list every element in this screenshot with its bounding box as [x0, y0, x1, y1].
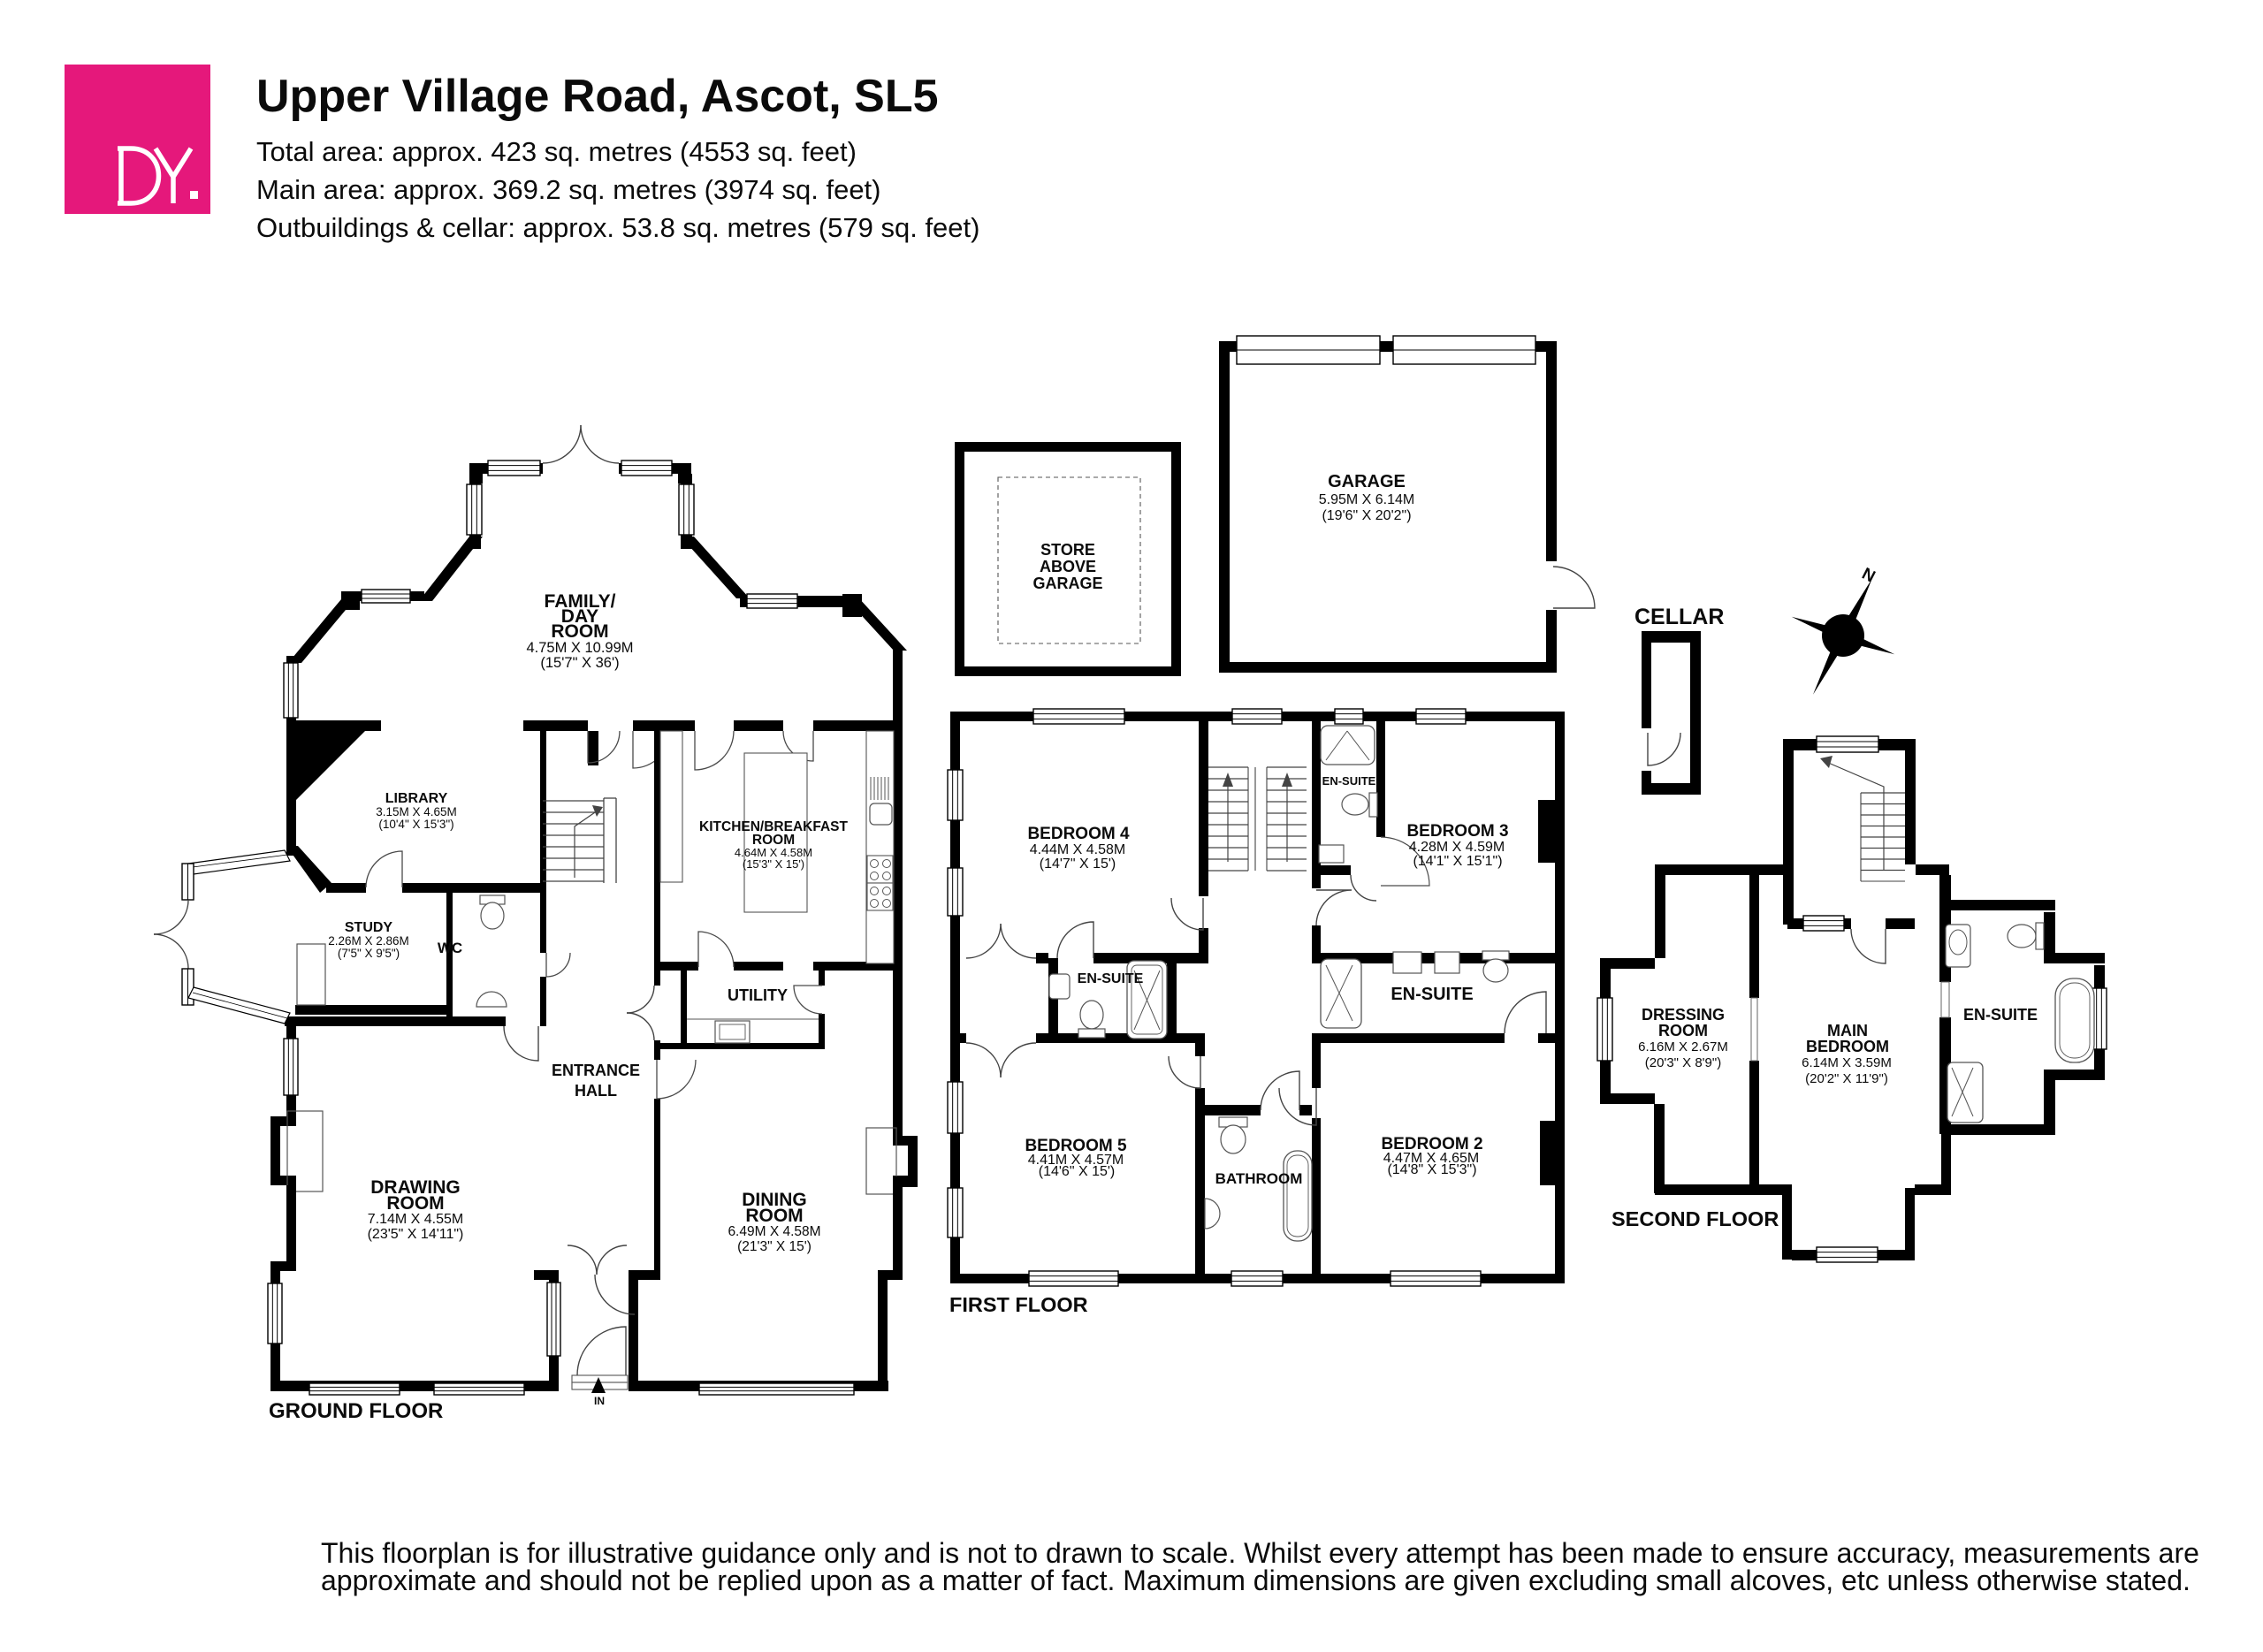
svg-text:BEDROOM: BEDROOM [1806, 1038, 1889, 1055]
svg-text:5.95M X 6.14M: 5.95M X 6.14M [1319, 492, 1415, 507]
svg-text:ENTRANCE: ENTRANCE [552, 1062, 640, 1079]
svg-text:(15'3" X 15'): (15'3" X 15') [743, 857, 804, 871]
svg-text:ABOVE: ABOVE [1040, 558, 1096, 575]
svg-text:6.16M X 2.67M: 6.16M X 2.67M [1638, 1039, 1728, 1054]
svg-text:BATHROOM: BATHROOM [1215, 1170, 1303, 1187]
svg-text:IN: IN [594, 1395, 605, 1407]
svg-text:DRESSING: DRESSING [1642, 1006, 1725, 1024]
svg-text:GARAGE: GARAGE [1032, 575, 1102, 592]
svg-text:N: N [1859, 565, 1878, 587]
svg-text:ROOM: ROOM [386, 1193, 444, 1214]
svg-text:LIBRARY: LIBRARY [385, 791, 448, 806]
svg-text:ROOM: ROOM [1658, 1022, 1708, 1039]
svg-text:3.15M X 4.65M: 3.15M X 4.65M [376, 805, 457, 818]
svg-text:WC: WC [438, 940, 462, 956]
svg-text:(23'5" X 14'11"): (23'5" X 14'11") [368, 1227, 464, 1242]
svg-text:4.44M X 4.58M: 4.44M X 4.58M [1030, 842, 1126, 857]
svg-text:STUDY: STUDY [345, 920, 393, 935]
svg-text:Outbuildings & cellar: approx.: Outbuildings & cellar: approx. 53.8 sq. … [256, 212, 979, 243]
svg-text:(10'4" X 15'3"): (10'4" X 15'3") [378, 818, 453, 831]
svg-text:4.28M X 4.59M: 4.28M X 4.59M [1409, 840, 1505, 855]
svg-text:MAIN: MAIN [1827, 1022, 1868, 1039]
svg-text:(20'2" X 11'9"): (20'2" X 11'9") [1805, 1071, 1888, 1086]
svg-text:STORE: STORE [1040, 541, 1095, 559]
svg-text:(20'3" X 8'9"): (20'3" X 8'9") [1645, 1055, 1721, 1070]
svg-text:Upper Village Road, Ascot, SL5: Upper Village Road, Ascot, SL5 [256, 71, 939, 122]
svg-text:6.14M X 3.59M: 6.14M X 3.59M [1802, 1055, 1892, 1070]
svg-text:Total area: approx. 423 sq. me: Total area: approx. 423 sq. metres (4553… [256, 136, 857, 167]
svg-text:UTILITY: UTILITY [728, 986, 788, 1004]
svg-text:BEDROOM 3: BEDROOM 3 [1406, 822, 1508, 841]
svg-text:2.26M X 2.86M: 2.26M X 2.86M [328, 934, 409, 948]
svg-text:SECOND FLOOR: SECOND FLOOR [1612, 1207, 1779, 1230]
svg-text:(21'3" X 15'): (21'3" X 15') [737, 1239, 811, 1254]
svg-text:ROOM: ROOM [551, 621, 608, 642]
svg-text:EN-SUITE: EN-SUITE [1391, 985, 1473, 1004]
svg-text:ROOM: ROOM [745, 1206, 803, 1226]
svg-text:CELLAR: CELLAR [1634, 605, 1724, 629]
svg-text:(15'7" X 36'): (15'7" X 36') [540, 655, 619, 671]
svg-text:GROUND FLOOR: GROUND FLOOR [269, 1399, 443, 1423]
svg-text:6.49M X 4.58M: 6.49M X 4.58M [728, 1224, 820, 1239]
svg-text:GARAGE: GARAGE [1328, 472, 1406, 491]
svg-text:7.14M X 4.55M: 7.14M X 4.55M [368, 1212, 464, 1227]
svg-text:(14'1" X 15'1"): (14'1" X 15'1") [1413, 854, 1502, 869]
svg-text:EN-SUITE: EN-SUITE [1322, 774, 1376, 788]
svg-text:(19'6" X 20'2"): (19'6" X 20'2") [1322, 508, 1411, 523]
svg-text:EN-SUITE: EN-SUITE [1078, 971, 1144, 986]
svg-text:4.75M X 10.99M: 4.75M X 10.99M [526, 640, 633, 656]
svg-text:(7'5" X 9'5"): (7'5" X 9'5") [338, 947, 400, 960]
svg-text:Main area: approx. 369.2 sq. m: Main area: approx. 369.2 sq. metres (397… [256, 174, 881, 205]
svg-text:BEDROOM 4: BEDROOM 4 [1027, 825, 1130, 843]
svg-text:(14'7" X 15'): (14'7" X 15') [1040, 856, 1116, 872]
svg-text:FIRST FLOOR: FIRST FLOOR [949, 1293, 1088, 1316]
svg-text:(14'8" X 15'3"): (14'8" X 15'3") [1387, 1162, 1476, 1177]
svg-text:(14'6" X 15'): (14'6" X 15') [1039, 1164, 1116, 1179]
svg-text:HALL: HALL [575, 1082, 617, 1100]
svg-text:EN-SUITE: EN-SUITE [1963, 1006, 2038, 1024]
svg-text:approximate and should not be: approximate and should not be replied up… [321, 1564, 2191, 1596]
